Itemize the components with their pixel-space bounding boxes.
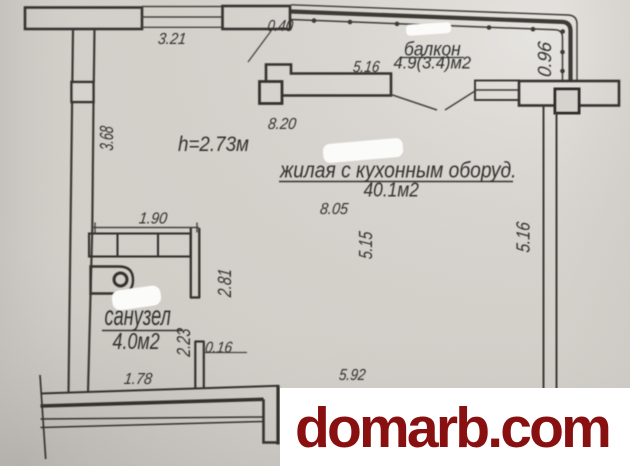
- svg-text:0.16: 0.16: [204, 340, 234, 357]
- svg-text:1.90: 1.90: [138, 210, 169, 228]
- svg-text:5.92: 5.92: [338, 367, 367, 384]
- svg-text:0.96: 0.96: [534, 40, 556, 78]
- svg-text:8.20: 8.20: [267, 115, 298, 133]
- svg-text:3.68: 3.68: [97, 125, 118, 151]
- svg-text:8.05: 8.05: [319, 200, 350, 218]
- svg-text:4.9(3.4)м2: 4.9(3.4)м2: [394, 52, 472, 73]
- svg-text:2.81: 2.81: [214, 268, 235, 299]
- svg-text:3.21: 3.21: [157, 30, 187, 48]
- svg-text:5.16: 5.16: [512, 220, 534, 253]
- svg-text:domarb.com: domarb.com: [295, 396, 609, 460]
- svg-text:1.78: 1.78: [123, 370, 154, 388]
- svg-text:5.15: 5.15: [355, 230, 377, 260]
- svg-text:h=2.73м: h=2.73м: [178, 133, 249, 156]
- svg-text:5.16: 5.16: [352, 59, 381, 76]
- svg-text:4.0м2: 4.0м2: [113, 329, 161, 355]
- svg-text:0.40: 0.40: [266, 18, 294, 35]
- svg-text:40.1м2: 40.1м2: [364, 178, 420, 200]
- svg-text:2.23: 2.23: [173, 327, 194, 359]
